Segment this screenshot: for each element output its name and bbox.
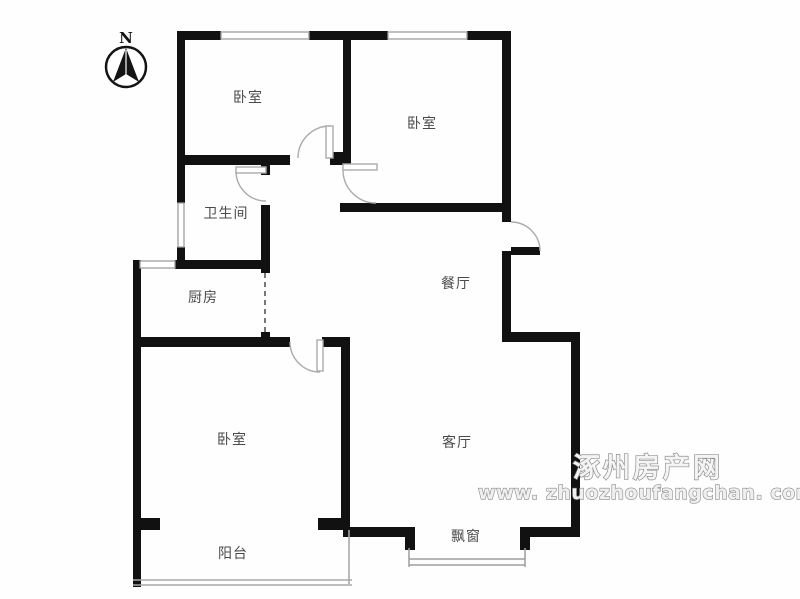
label-bedroom-top-left: 卧室 bbox=[233, 89, 263, 106]
floor-plan: N 卧室 卧室 卫生间 厨房 餐厅 卧室 客厅 阳台 飘窗 涿州房产网 www.… bbox=[0, 0, 800, 599]
wall-segment bbox=[261, 205, 270, 273]
watermark-site-url: www. zhuozhoufangchan. com bbox=[478, 482, 800, 504]
wall-segment bbox=[343, 527, 405, 537]
wall-segment bbox=[133, 337, 290, 347]
wall-segment bbox=[177, 31, 185, 203]
watermark: 涿州房产网 www. zhuozhoufangchan. com bbox=[478, 453, 800, 504]
window-bathroom bbox=[178, 203, 184, 247]
bathroom-door-leaf bbox=[236, 167, 266, 173]
window-kitchen bbox=[140, 261, 175, 268]
wall-segment bbox=[530, 527, 580, 537]
label-bedroom-top-right: 卧室 bbox=[407, 115, 437, 132]
label-balcony: 阳台 bbox=[218, 546, 248, 562]
label-kitchen: 厨房 bbox=[188, 290, 218, 306]
label-bay-window: 飘窗 bbox=[451, 528, 481, 545]
bay-window-post bbox=[520, 527, 530, 550]
wall-segment bbox=[340, 203, 511, 212]
wall-segment bbox=[175, 260, 270, 269]
wall-segment bbox=[318, 518, 350, 530]
label-bathroom: 卫生间 bbox=[204, 206, 249, 222]
bay-window-post bbox=[405, 527, 415, 550]
entrance-door-arc bbox=[511, 222, 540, 251]
bedroom1-door-leaf bbox=[326, 126, 333, 158]
bedroom2-door-arc bbox=[343, 170, 376, 203]
label-living-room: 客厅 bbox=[442, 434, 472, 451]
label-bedroom-bottom-left: 卧室 bbox=[217, 431, 247, 448]
label-dining-room: 餐厅 bbox=[441, 276, 471, 292]
wall-segment bbox=[343, 31, 351, 165]
bedroom2-door-leaf bbox=[343, 164, 377, 170]
window-bedroom1 bbox=[221, 32, 309, 39]
wall-segment bbox=[502, 332, 580, 342]
bay-window-glazing bbox=[409, 548, 525, 567]
wall-segment bbox=[133, 518, 160, 530]
windows bbox=[140, 32, 467, 268]
wall-segment bbox=[341, 337, 350, 530]
wall-segment bbox=[571, 332, 580, 537]
wall-segment bbox=[502, 251, 511, 337]
wall-segment bbox=[502, 31, 511, 222]
watermark-site-name: 涿州房产网 bbox=[573, 453, 723, 484]
bedroom3-door-arc bbox=[290, 342, 320, 372]
bathroom-door-arc bbox=[236, 171, 266, 201]
bedroom1-door-arc bbox=[298, 126, 330, 158]
entrance-door-leaf bbox=[511, 247, 540, 255]
wall-segment bbox=[133, 260, 141, 587]
floor-plan-canvas: N 卧室 卧室 卫生间 厨房 餐厅 卧室 客厅 阳台 飘窗 涿州房产网 www.… bbox=[0, 0, 800, 599]
bedroom3-door-leaf bbox=[317, 340, 323, 371]
wall-segment bbox=[177, 155, 290, 165]
compass: N bbox=[106, 29, 146, 87]
compass-north-label: N bbox=[119, 29, 133, 47]
window-bedroom2 bbox=[388, 32, 467, 39]
